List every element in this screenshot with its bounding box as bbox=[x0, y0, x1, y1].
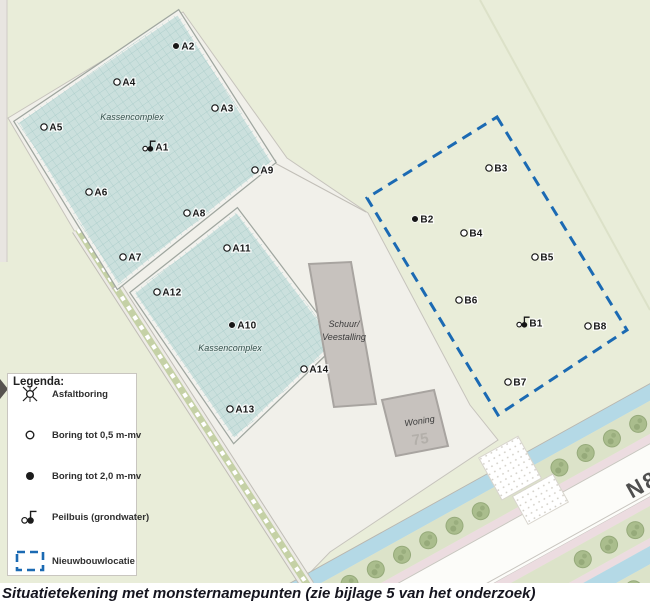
legend-box: Legenda: AsfaltboringBoring tot 0,5 m-mv… bbox=[7, 373, 137, 576]
point-label-b8: B8 bbox=[593, 322, 606, 333]
caption: Situatietekening met monsternamepunten (… bbox=[0, 583, 650, 605]
point-label-a10: A10 bbox=[237, 321, 256, 332]
situatietekening-page: N8 A1A2A3A4A5A bbox=[0, 0, 650, 605]
legend-item-label: Boring tot 2,0 m-mv bbox=[52, 471, 141, 482]
legend-item-boring-tot-0-5-m-mv: Boring tot 0,5 m-mv bbox=[8, 423, 141, 447]
legend-item-asfaltboring: Asfaltboring bbox=[8, 382, 108, 406]
point-label-a14: A14 bbox=[309, 365, 328, 376]
point-label-a2: A2 bbox=[181, 42, 194, 53]
point-label-b3: B3 bbox=[494, 164, 507, 175]
building-label-schuur-veestalling: Veestalling bbox=[322, 332, 366, 342]
boring-20-icon bbox=[21, 467, 39, 485]
left-road-strip bbox=[0, 0, 7, 262]
area-label-1: Kassencomplex bbox=[198, 343, 262, 353]
asfaltboring-icon bbox=[19, 383, 41, 405]
nieuwbouwlocatie-icon bbox=[14, 549, 46, 573]
point-label-a9: A9 bbox=[260, 166, 273, 177]
point-label-a5: A5 bbox=[49, 123, 62, 134]
area-label-0: Kassencomplex bbox=[100, 112, 164, 122]
point-label-a11: A11 bbox=[232, 244, 251, 255]
legend-item-nieuwbouwlocatie: Nieuwbouwlocatie bbox=[8, 549, 135, 573]
point-label-a13: A13 bbox=[235, 405, 254, 416]
point-label-b5: B5 bbox=[540, 253, 553, 264]
point-label-a6: A6 bbox=[94, 188, 107, 199]
point-label-b7: B7 bbox=[513, 378, 526, 389]
legend-item-label: Peilbuis (grondwater) bbox=[52, 512, 149, 523]
peilbuis-icon bbox=[17, 504, 43, 530]
point-label-b1: B1 bbox=[529, 319, 542, 330]
building-label-schuur-veestalling: Schuur/ bbox=[328, 319, 361, 329]
point-label-a4: A4 bbox=[122, 78, 135, 89]
house-number: 75 bbox=[411, 430, 430, 449]
legend-item-label: Nieuwbouwlocatie bbox=[52, 556, 135, 567]
legend-item-boring-tot-2-0-m-mv: Boring tot 2,0 m-mv bbox=[8, 464, 141, 488]
boring-05-icon bbox=[21, 426, 39, 444]
point-label-b4: B4 bbox=[469, 229, 482, 240]
point-label-b6: B6 bbox=[464, 296, 477, 307]
legend-item-label: Boring tot 0,5 m-mv bbox=[52, 430, 141, 441]
point-label-a8: A8 bbox=[192, 209, 205, 220]
legend-item-label: Asfaltboring bbox=[52, 389, 108, 400]
point-label-a1: A1 bbox=[155, 143, 168, 154]
point-label-a7: A7 bbox=[128, 253, 141, 264]
point-label-a3: A3 bbox=[220, 104, 233, 115]
point-label-a12: A12 bbox=[162, 288, 181, 299]
legend-item-peilbuis-grondwater-: Peilbuis (grondwater) bbox=[8, 505, 149, 529]
point-label-b2: B2 bbox=[420, 215, 433, 226]
